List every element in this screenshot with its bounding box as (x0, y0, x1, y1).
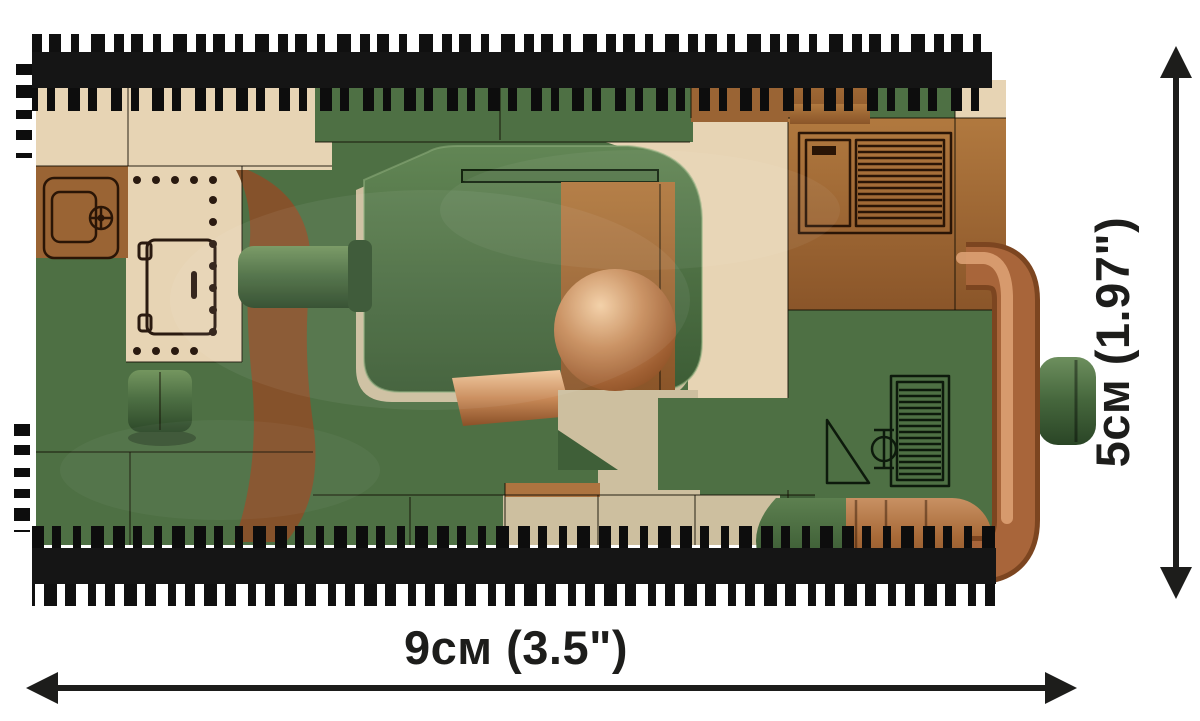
height-dimension: 5см (1.97") (1086, 46, 1192, 599)
width-arrowhead-left (26, 672, 58, 704)
tank-illustration-svg: 9см (3.5") 5см (1.97") (0, 0, 1200, 721)
track-end-links (22, 64, 24, 532)
width-dimension-label: 9см (3.5") (404, 621, 628, 674)
track-top (32, 43, 992, 98)
green-block-right-of-dome (658, 398, 790, 490)
height-dimension-label: 5см (1.97") (1086, 217, 1139, 468)
width-arrowhead-right (1045, 672, 1077, 704)
tank-top-view (22, 43, 1096, 594)
height-arrowhead-top (1160, 46, 1192, 78)
height-arrowhead-bottom (1160, 567, 1192, 599)
width-dimension: 9см (3.5") (26, 621, 1077, 704)
product-dimension-figure: 9см (3.5") 5см (1.97") (0, 0, 1200, 721)
track-bottom (32, 538, 996, 594)
